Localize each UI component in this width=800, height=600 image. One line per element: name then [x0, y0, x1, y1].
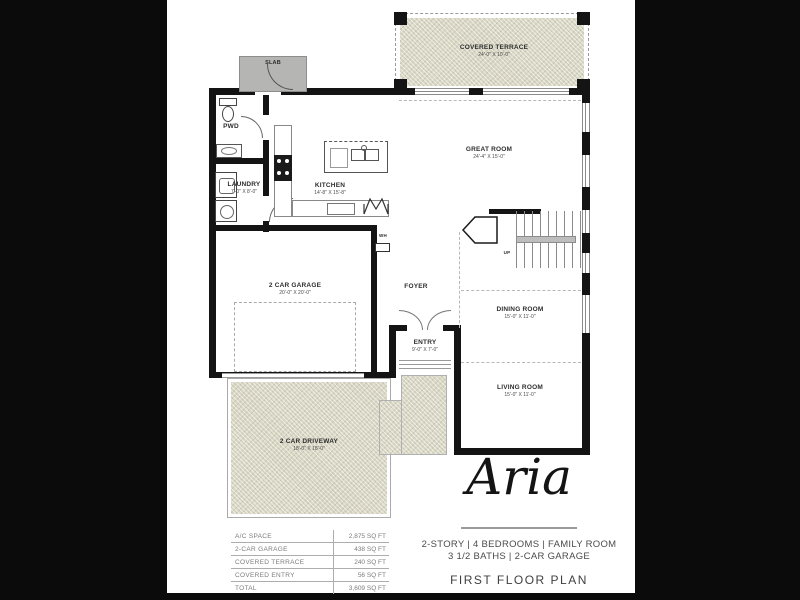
row-value: 3,609 SQ FT — [333, 582, 389, 594]
wall-dining-left — [454, 330, 461, 455]
room-label-dining: DINING ROOM 15'-0" X 11'-0" — [497, 306, 544, 320]
room-label-entry: ENTRY 9'-0" X 7'-0" — [412, 339, 438, 353]
plan-title: FIRST FLOOR PLAN — [450, 573, 588, 587]
burner — [277, 171, 281, 175]
water-heater-icon — [375, 243, 390, 252]
wall-pwd-east-b — [263, 140, 269, 196]
row-value: 56 SQ FT — [333, 569, 389, 581]
kitchen-island — [324, 141, 388, 173]
garage-parking-outline — [234, 302, 356, 372]
row-label: COVERED ENTRY — [231, 572, 333, 579]
wall-entry-left — [389, 330, 396, 378]
room-label-pwd: PWD — [223, 123, 239, 131]
burner — [285, 171, 289, 175]
row-label: TOTAL — [231, 585, 333, 592]
table-row: COVERED TERRACE 240 SQ FT — [231, 556, 389, 569]
foyer-great-room-divider — [459, 232, 460, 328]
cooktop-icon — [330, 148, 348, 168]
entry-step — [399, 368, 451, 369]
great-dining-divider — [461, 290, 581, 291]
window-great-room-1 — [582, 103, 590, 132]
entry-door-arc-right — [427, 310, 451, 330]
faucet-icon — [361, 145, 367, 151]
room-label-laundry: LAUNDRY 7'-0" X 8'-0" — [228, 181, 261, 195]
ceiling-dash-line — [399, 100, 581, 101]
dishwasher-icon — [327, 203, 355, 215]
fridge-icon — [363, 196, 389, 215]
room-label-great-room: GREAT ROOM 24'-4" X 15'-0" — [466, 146, 512, 160]
row-value: 2,875 SQ FT — [333, 530, 389, 542]
dryer-icon — [215, 200, 237, 222]
entry-walkway — [401, 375, 447, 455]
room-label-garage: 2 CAR GARAGE 20'-0" X 20'-0" — [269, 282, 321, 296]
toilet-icon — [222, 106, 234, 122]
table-row-total: TOTAL 3,609 SQ FT — [231, 582, 389, 594]
window-terrace-left — [415, 88, 469, 95]
pwd-sink-icon — [221, 147, 237, 155]
toilet-tank-icon — [219, 98, 237, 106]
specs-line-2: 3 1/2 BATHS | 2-CAR GARAGE — [448, 551, 590, 562]
door-arc-pwd — [241, 116, 263, 138]
room-label-driveway: 2 CAR DRIVEWAY 18'-0" X 18'-0" — [280, 438, 338, 452]
area-table: A/C SPACE 2,875 SQ FT 2-CAR GARAGE 438 S… — [231, 530, 389, 594]
wall-garage-top — [209, 225, 377, 231]
stairs-up-label: UP — [504, 250, 511, 256]
wh-label: WH — [379, 233, 387, 239]
entry-step — [399, 364, 451, 365]
range-icon — [274, 155, 292, 181]
wall-pwd-east-c — [263, 221, 269, 232]
window-great-room-2 — [582, 155, 590, 187]
row-label: COVERED TERRACE — [231, 559, 333, 566]
title-divider-line — [461, 527, 577, 529]
table-row: COVERED ENTRY 56 SQ FT — [231, 569, 389, 582]
entry-step — [399, 360, 451, 361]
window-terrace-right — [483, 88, 569, 95]
specs-line-1: 2-STORY | 4 BEDROOMS | FAMILY ROOM — [422, 539, 617, 550]
row-label: A/C SPACE — [231, 533, 333, 540]
wall-pwd-bottom — [216, 158, 263, 164]
plan-sheet: COVERED TERRACE 24'-0" X 10'-0" SLAB PWD — [167, 0, 635, 593]
window-stair-landing — [582, 210, 590, 233]
room-label-foyer: FOYER — [404, 283, 427, 291]
window-great-room-3 — [582, 253, 590, 273]
screenshot-root: { "page": { "background_color": "#0b0b0b… — [0, 0, 800, 600]
room-label-kitchen: KITCHEN 14'-8" X 15'-8" — [314, 182, 346, 196]
terrace-post — [394, 12, 407, 25]
window-dining-room — [582, 295, 590, 333]
island-sink-basin — [365, 149, 379, 161]
dryer-door — [220, 205, 234, 219]
row-value: 240 SQ FT — [333, 556, 389, 568]
table-row: A/C SPACE 2,875 SQ FT — [231, 530, 389, 543]
entry-walkway-extension — [379, 400, 402, 455]
burner — [277, 159, 281, 163]
entry-door-arc-left — [399, 310, 423, 330]
room-label-living: LIVING ROOM 15'-0" X 11'-0" — [497, 384, 543, 398]
model-name-logo: Aria — [466, 448, 572, 506]
terrace-post — [577, 12, 590, 25]
stair-landing-arrow — [462, 216, 498, 244]
wall-left — [209, 88, 216, 378]
stair-handrail — [516, 236, 576, 243]
row-value: 438 SQ FT — [333, 543, 389, 555]
room-label-covered-terrace: COVERED TERRACE 24'-0" X 10'-0" — [460, 44, 528, 58]
row-label: 2-CAR GARAGE — [231, 546, 333, 553]
dining-living-divider — [461, 362, 581, 363]
table-row: 2-CAR GARAGE 438 SQ FT — [231, 543, 389, 556]
burner — [285, 159, 289, 163]
